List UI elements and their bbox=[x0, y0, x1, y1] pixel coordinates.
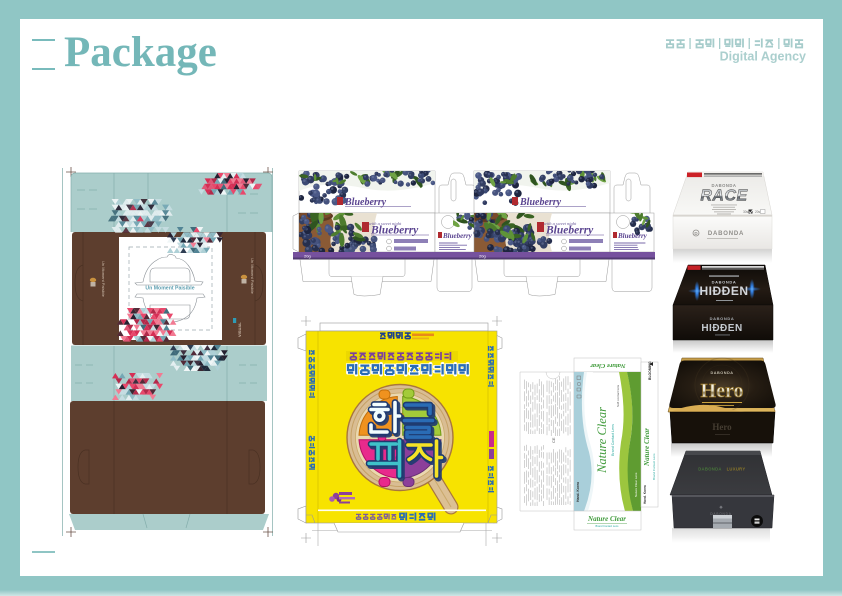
svg-text:Blueberry: Blueberry bbox=[442, 232, 473, 240]
svg-text:Un Moment Paisible: Un Moment Paisible bbox=[145, 286, 194, 292]
svg-text:HIĐĐEN: HIĐĐEN bbox=[701, 323, 742, 334]
svg-text:DABONDA: DABONDA bbox=[698, 467, 722, 472]
svg-text:Brand Contact Lens: Brand Contact Lens bbox=[596, 524, 620, 528]
svg-text:Digital Agency: Digital Agency bbox=[720, 50, 806, 64]
svg-text:Nature Clear: Nature Clear bbox=[595, 407, 609, 474]
svg-text:BLOOMING: BLOOMING bbox=[648, 361, 652, 380]
svg-text:Nature Clear: Nature Clear bbox=[587, 515, 626, 523]
svg-text:Brand Contact Lens: Brand Contact Lens bbox=[652, 453, 656, 480]
svg-text:LUXURY: LUXURY bbox=[727, 467, 746, 472]
svg-text:Nature Clear: Nature Clear bbox=[590, 362, 627, 369]
svg-text:Blueberry: Blueberry bbox=[617, 232, 648, 240]
svg-text:CE: CE bbox=[551, 437, 556, 443]
svg-text:20g: 20g bbox=[304, 254, 311, 259]
svg-text:RACE: RACE bbox=[700, 188, 748, 205]
svg-text:DABONDA: DABONDA bbox=[708, 231, 744, 237]
svg-text:Hand. Korea: Hand. Korea bbox=[576, 482, 580, 502]
svg-text:Soft contact lens: Soft contact lens bbox=[616, 384, 620, 407]
svg-text:Blueberry: Blueberry bbox=[545, 225, 594, 237]
svg-text:Un Moment Paisible: Un Moment Paisible bbox=[250, 258, 255, 295]
svg-text:Hand. Korea: Hand. Korea bbox=[643, 485, 647, 504]
svg-text:Nature Clear: Nature Clear bbox=[643, 428, 651, 467]
svg-text:Hero: Hero bbox=[712, 422, 732, 432]
svg-text:HIĐĐEN: HIĐĐEN bbox=[699, 284, 748, 298]
svg-text:DABONDA: DABONDA bbox=[711, 371, 734, 375]
svg-text:20g: 20g bbox=[479, 254, 486, 259]
svg-text:DABONDA: DABONDA bbox=[710, 316, 735, 321]
svg-text:Nature Clear Lens: Nature Clear Lens bbox=[634, 472, 638, 497]
svg-text:VISUAL: VISUAL bbox=[237, 322, 242, 337]
svg-text:Brand Contact Lens: Brand Contact Lens bbox=[611, 424, 615, 456]
svg-text:20s: 20s bbox=[755, 210, 761, 214]
svg-text:30s: 30s bbox=[743, 210, 749, 214]
svg-text:Blueberry: Blueberry bbox=[370, 225, 419, 237]
svg-text:Hero: Hero bbox=[701, 380, 744, 402]
svg-text:Un Moment Paisible: Un Moment Paisible bbox=[101, 261, 106, 298]
